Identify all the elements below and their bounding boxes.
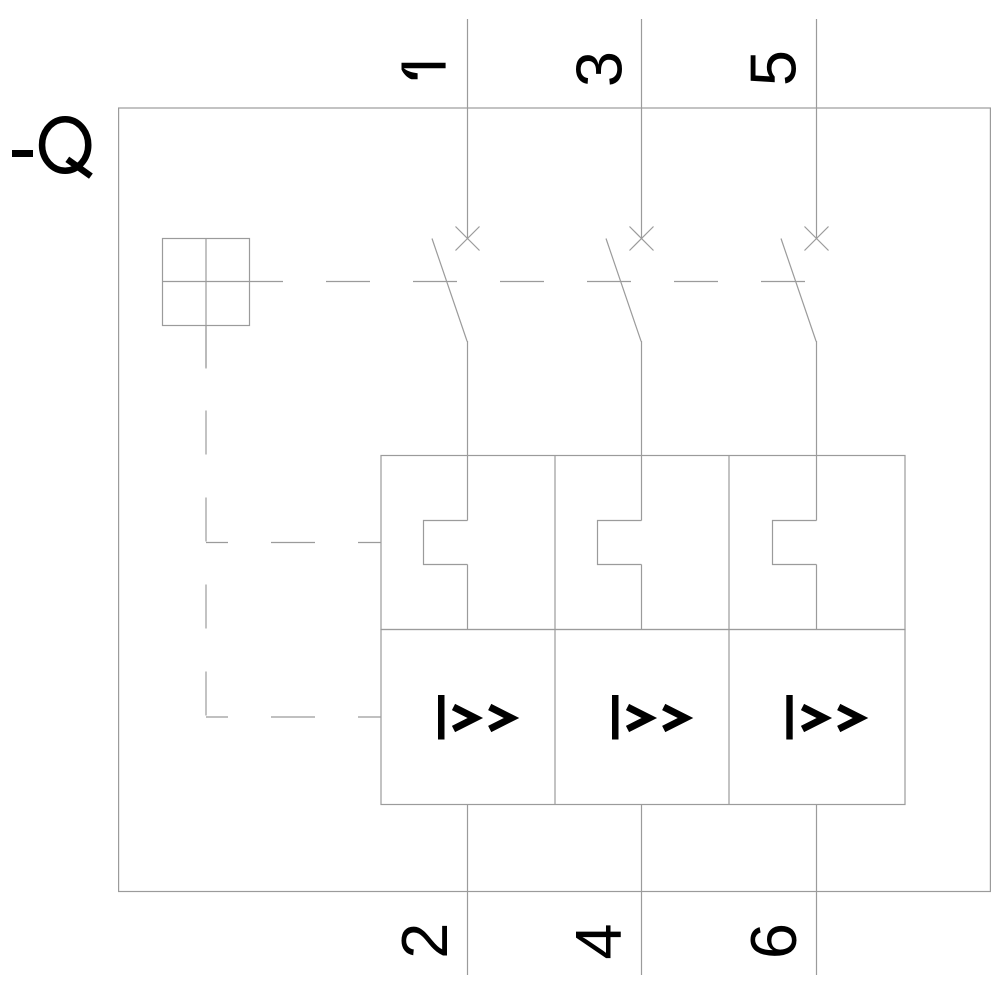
- svg-text:2: 2: [388, 923, 461, 959]
- svg-text:5: 5: [736, 50, 809, 86]
- svg-text:6: 6: [737, 923, 810, 959]
- svg-text:4: 4: [562, 923, 635, 959]
- svg-text:3: 3: [562, 51, 635, 87]
